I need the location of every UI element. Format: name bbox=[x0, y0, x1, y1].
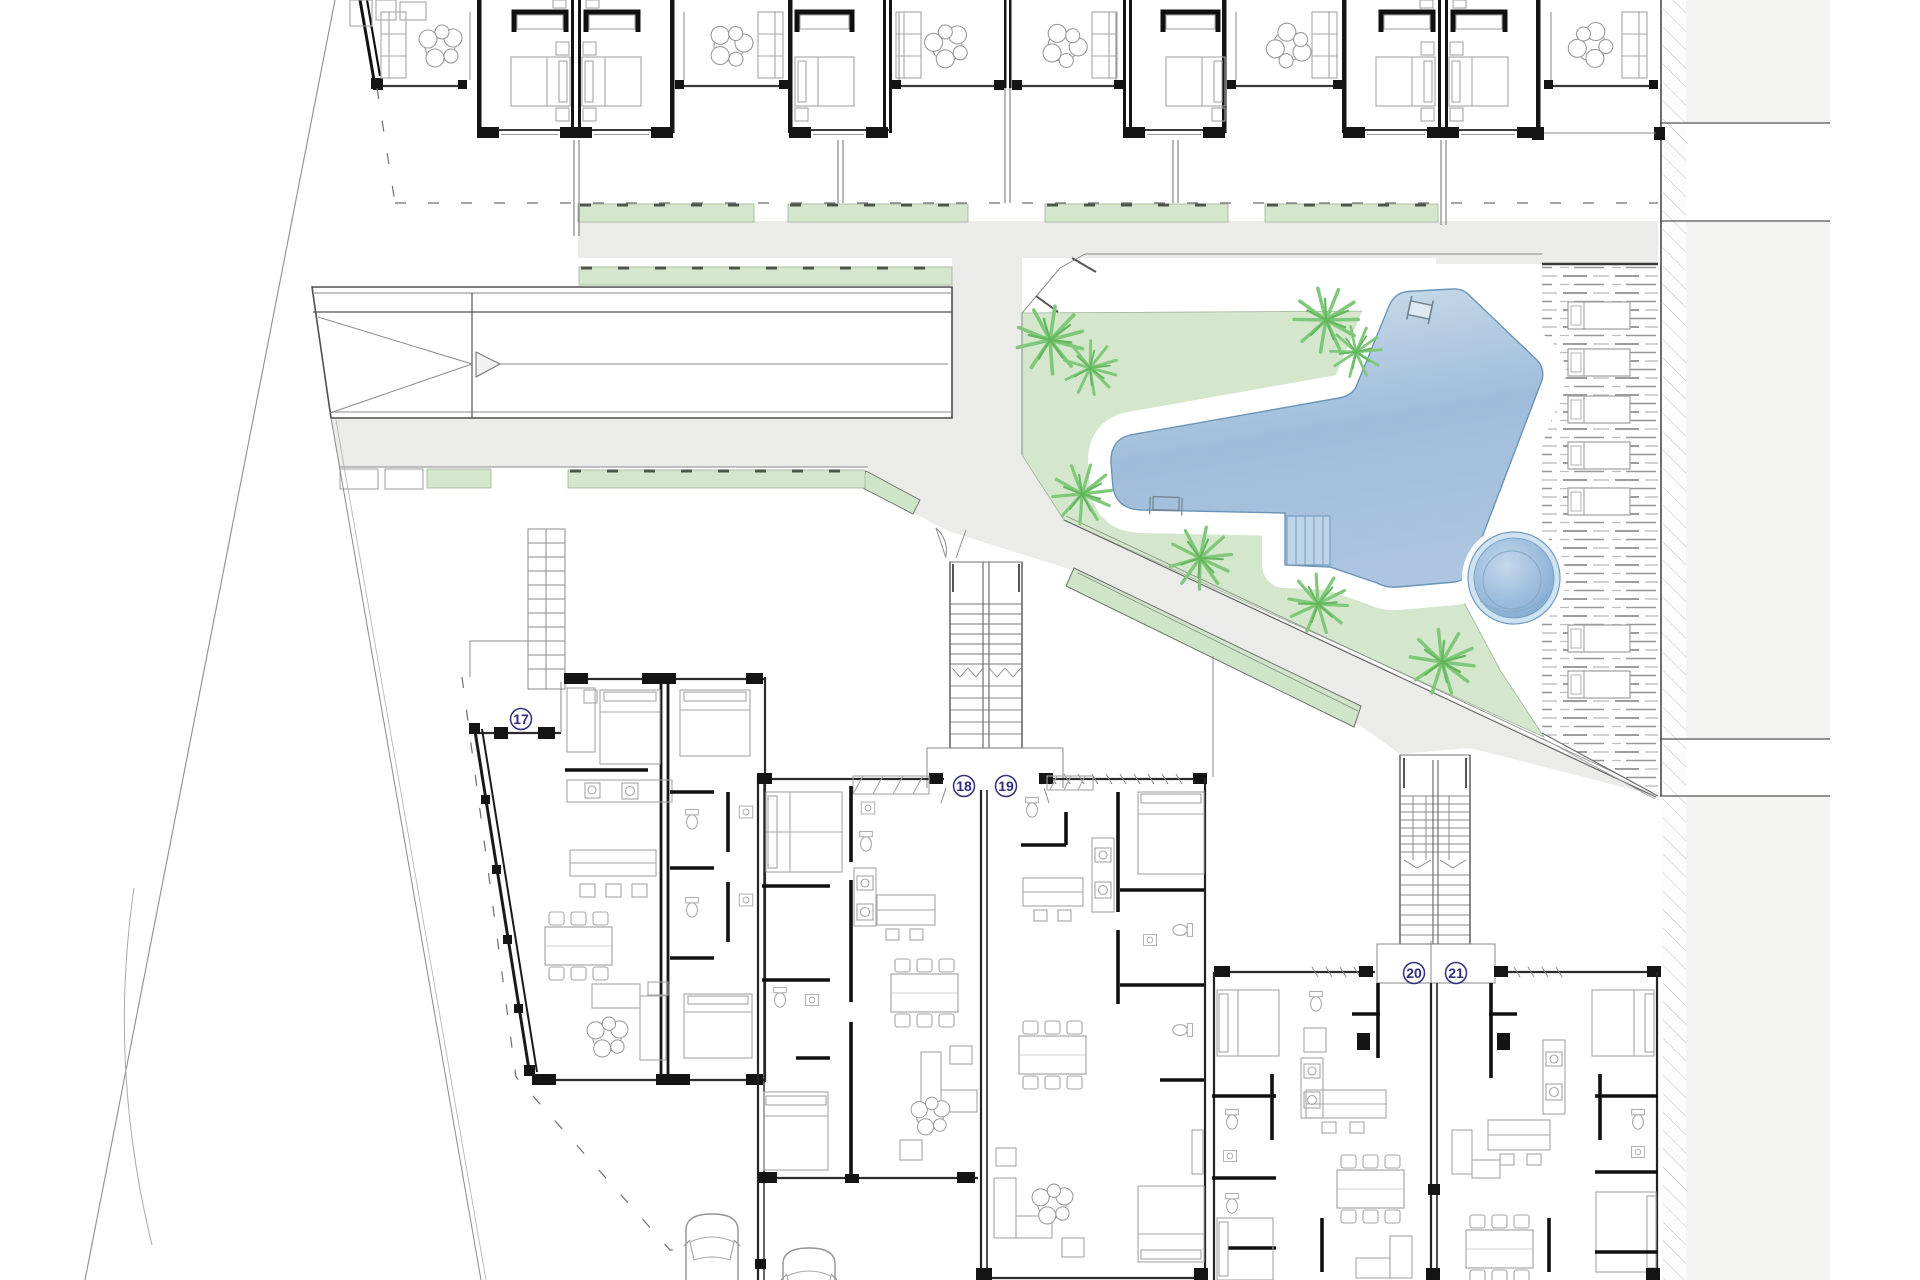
svg-text:19: 19 bbox=[998, 778, 1014, 794]
svg-text:18: 18 bbox=[956, 778, 972, 794]
svg-text:20: 20 bbox=[1406, 965, 1422, 981]
svg-text:17: 17 bbox=[513, 711, 529, 727]
svg-text:21: 21 bbox=[1448, 965, 1464, 981]
